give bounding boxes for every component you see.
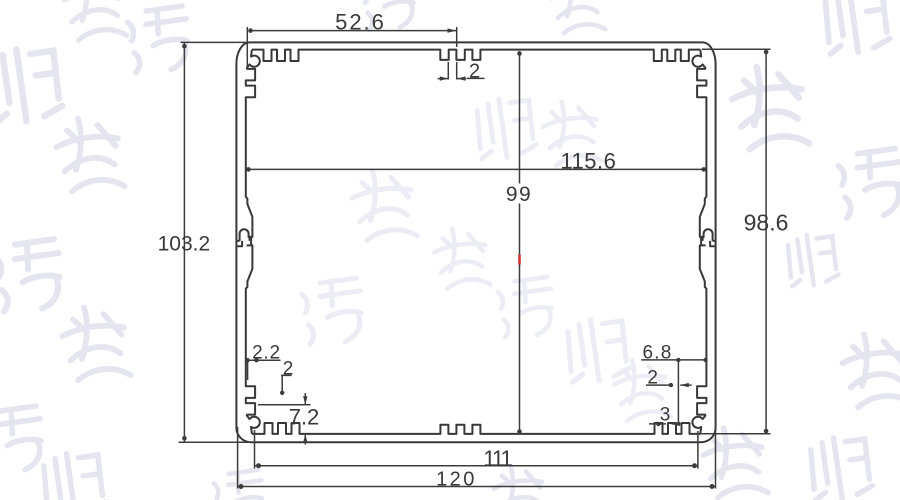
svg-text:103.2: 103.2 <box>158 232 211 255</box>
svg-text:52.6: 52.6 <box>335 10 386 35</box>
svg-text:7.2: 7.2 <box>289 405 320 430</box>
svg-text:120: 120 <box>436 469 477 491</box>
svg-text:2: 2 <box>283 359 294 380</box>
svg-text:2.2: 2.2 <box>252 342 281 363</box>
svg-text:98.6: 98.6 <box>744 209 789 235</box>
svg-text:99: 99 <box>506 183 532 206</box>
svg-text:2: 2 <box>469 60 480 82</box>
svg-text:3: 3 <box>660 405 671 426</box>
svg-text:111: 111 <box>483 446 512 471</box>
svg-text:6.8: 6.8 <box>642 342 672 363</box>
svg-text:115.6: 115.6 <box>560 149 616 174</box>
svg-text:2: 2 <box>647 367 658 388</box>
